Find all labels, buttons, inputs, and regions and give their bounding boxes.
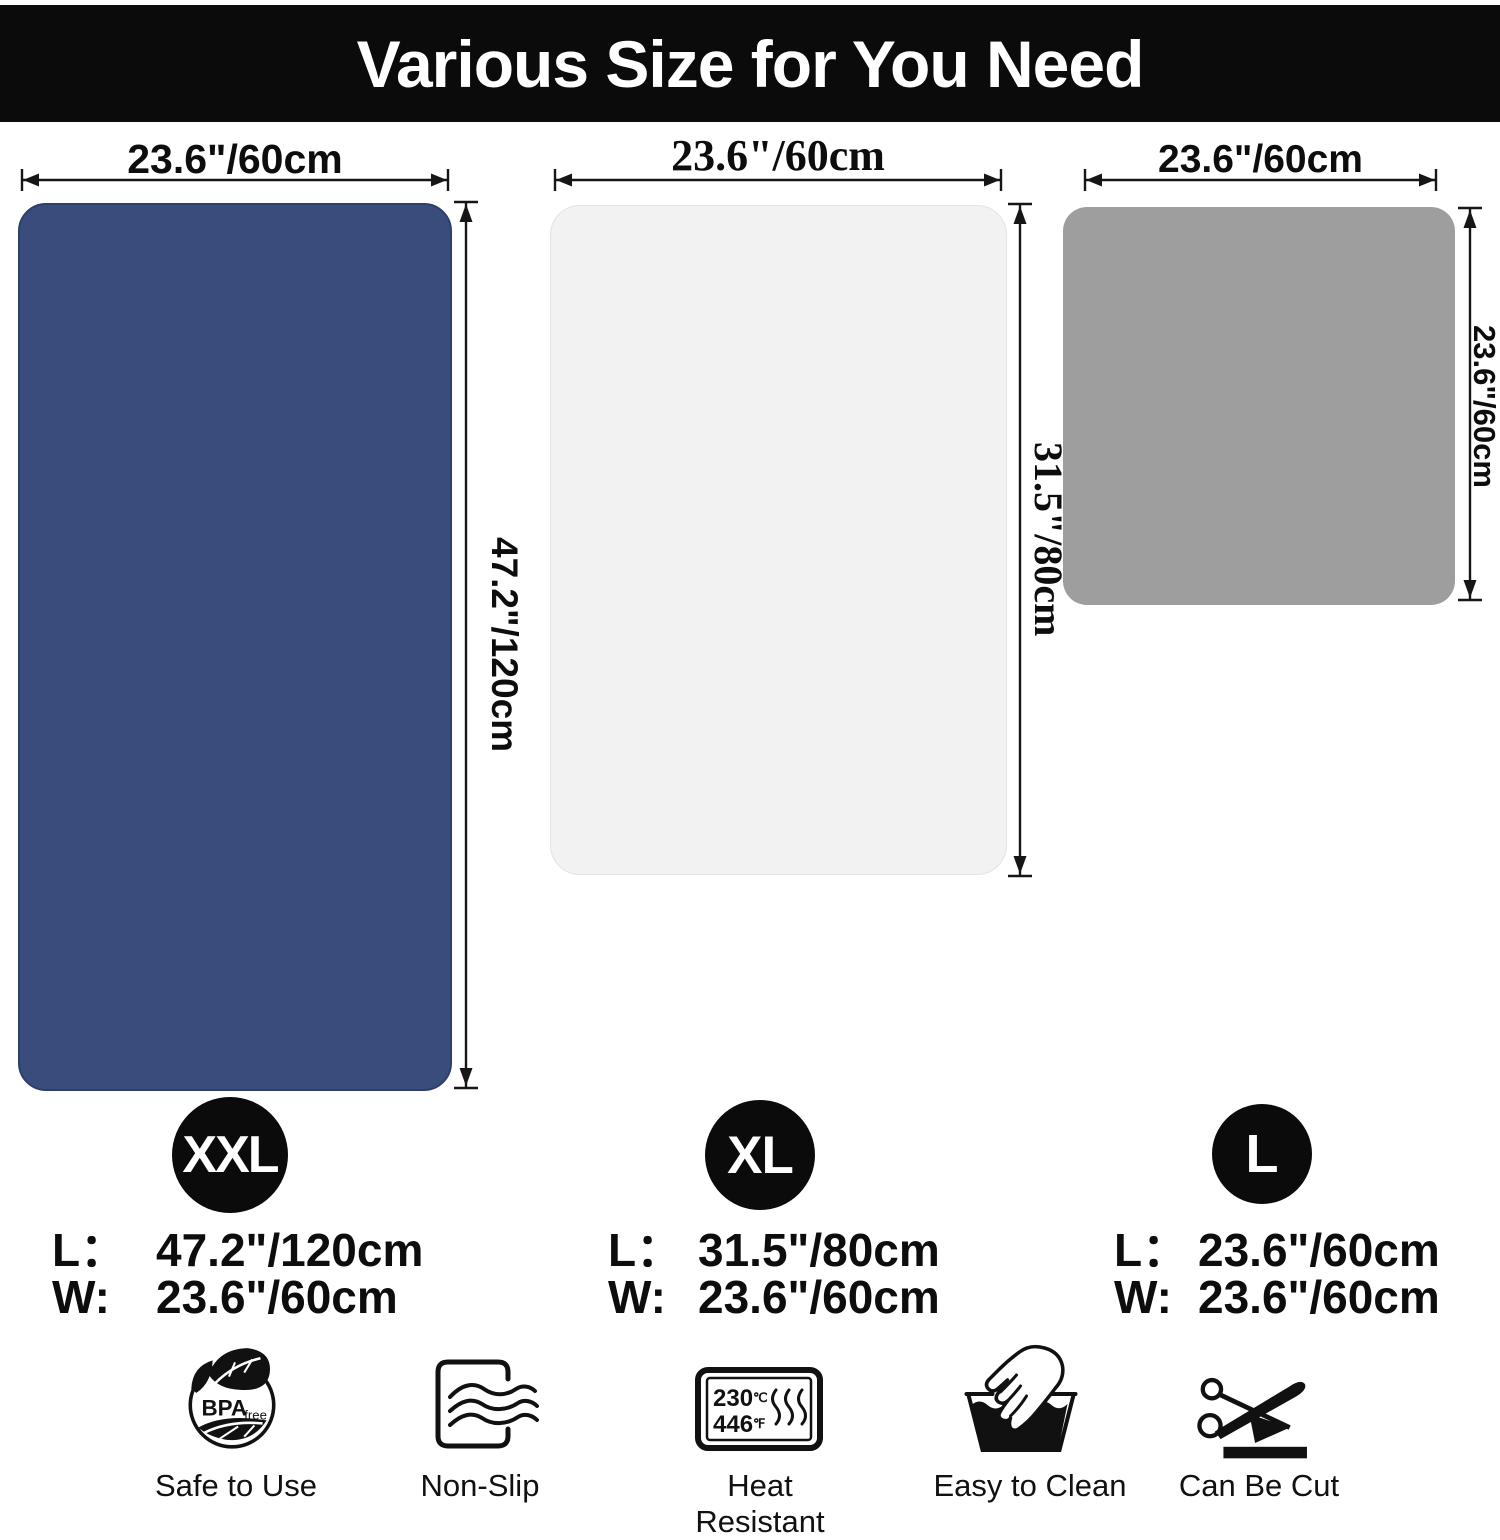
svg-text:446: 446	[713, 1411, 753, 1438]
specs-xl: L： 31.5"/80cm W: 23.6"/60cm	[608, 1214, 940, 1326]
non-slip-icon	[430, 1356, 550, 1454]
mat-l	[1063, 207, 1455, 605]
spec-length-xxl: L： 47.2"/120cm	[52, 1214, 423, 1270]
spec-width-xl: W: 23.6"/60cm	[608, 1270, 940, 1326]
spec-width-xxl: W: 23.6"/60cm	[52, 1270, 423, 1326]
easy-to-clean-icon	[958, 1342, 1084, 1454]
size-badge-l: L	[1212, 1104, 1312, 1204]
feature-label-non-slip: Non-Slip	[380, 1468, 580, 1504]
spec-length-xl: L： 31.5"/80cm	[608, 1214, 940, 1270]
spec-width-label: W:	[1114, 1270, 1198, 1324]
spec-width-label: W:	[52, 1270, 156, 1324]
spec-length-value: 31.5"/80cm	[698, 1223, 940, 1277]
svg-text:230: 230	[713, 1385, 753, 1412]
svg-text:℃: ℃	[753, 1390, 768, 1405]
spec-length-value: 47.2"/120cm	[156, 1223, 423, 1277]
height-label-xl: 31.5"/80cm	[1028, 205, 1068, 873]
width-arrow-l	[1083, 167, 1438, 193]
spec-width-l: W: 23.6"/60cm	[1114, 1270, 1440, 1326]
specs-xxl: L： 47.2"/120cm W: 23.6"/60cm	[52, 1214, 423, 1326]
svg-text:℉: ℉	[753, 1416, 765, 1431]
heat-resistant-icon: 230 ℃ 446 ℉	[694, 1366, 824, 1452]
spec-width-value: 23.6"/60cm	[156, 1270, 398, 1324]
size-badge-xl-label: XL	[727, 1125, 793, 1186]
size-badge-l-label: L	[1246, 1123, 1279, 1185]
spec-length-l: L： 23.6"/60cm	[1114, 1214, 1440, 1270]
height-label-l: 23.6"/60cm	[1469, 207, 1500, 605]
specs-l: L： 23.6"/60cm W: 23.6"/60cm	[1114, 1214, 1440, 1326]
height-label-xxl: 47.2"/120cm	[486, 203, 523, 1087]
spec-width-label: W:	[608, 1270, 698, 1324]
can-be-cut-icon	[1194, 1370, 1322, 1466]
header-banner: Various Size for You Need	[0, 5, 1500, 122]
svg-text:BPA: BPA	[201, 1395, 247, 1420]
size-badge-xl: XL	[705, 1100, 815, 1210]
page-title: Various Size for You Need	[357, 26, 1144, 102]
feature-label-can-be-cut: Can Be Cut	[1159, 1468, 1359, 1504]
size-badge-xxl-label: XXL	[182, 1125, 277, 1185]
spec-width-value: 23.6"/60cm	[1198, 1270, 1440, 1324]
size-badge-xxl: XXL	[172, 1097, 288, 1213]
feature-label-safe-to-use: Safe to Use	[136, 1468, 336, 1504]
bpa-free-icon: BPA free	[181, 1342, 283, 1456]
mat-xl	[550, 205, 1007, 875]
spec-width-value: 23.6"/60cm	[698, 1270, 940, 1324]
feature-label-easy-to-clean: Easy to Clean	[930, 1468, 1130, 1504]
spec-length-value: 23.6"/60cm	[1198, 1223, 1440, 1277]
width-arrow-xxl	[20, 167, 450, 193]
feature-label-heat-resistant: Heat Resistant	[660, 1468, 860, 1540]
height-arrow-xxl	[452, 200, 480, 1090]
width-arrow-xl	[553, 167, 1003, 193]
mat-xxl	[18, 203, 452, 1091]
